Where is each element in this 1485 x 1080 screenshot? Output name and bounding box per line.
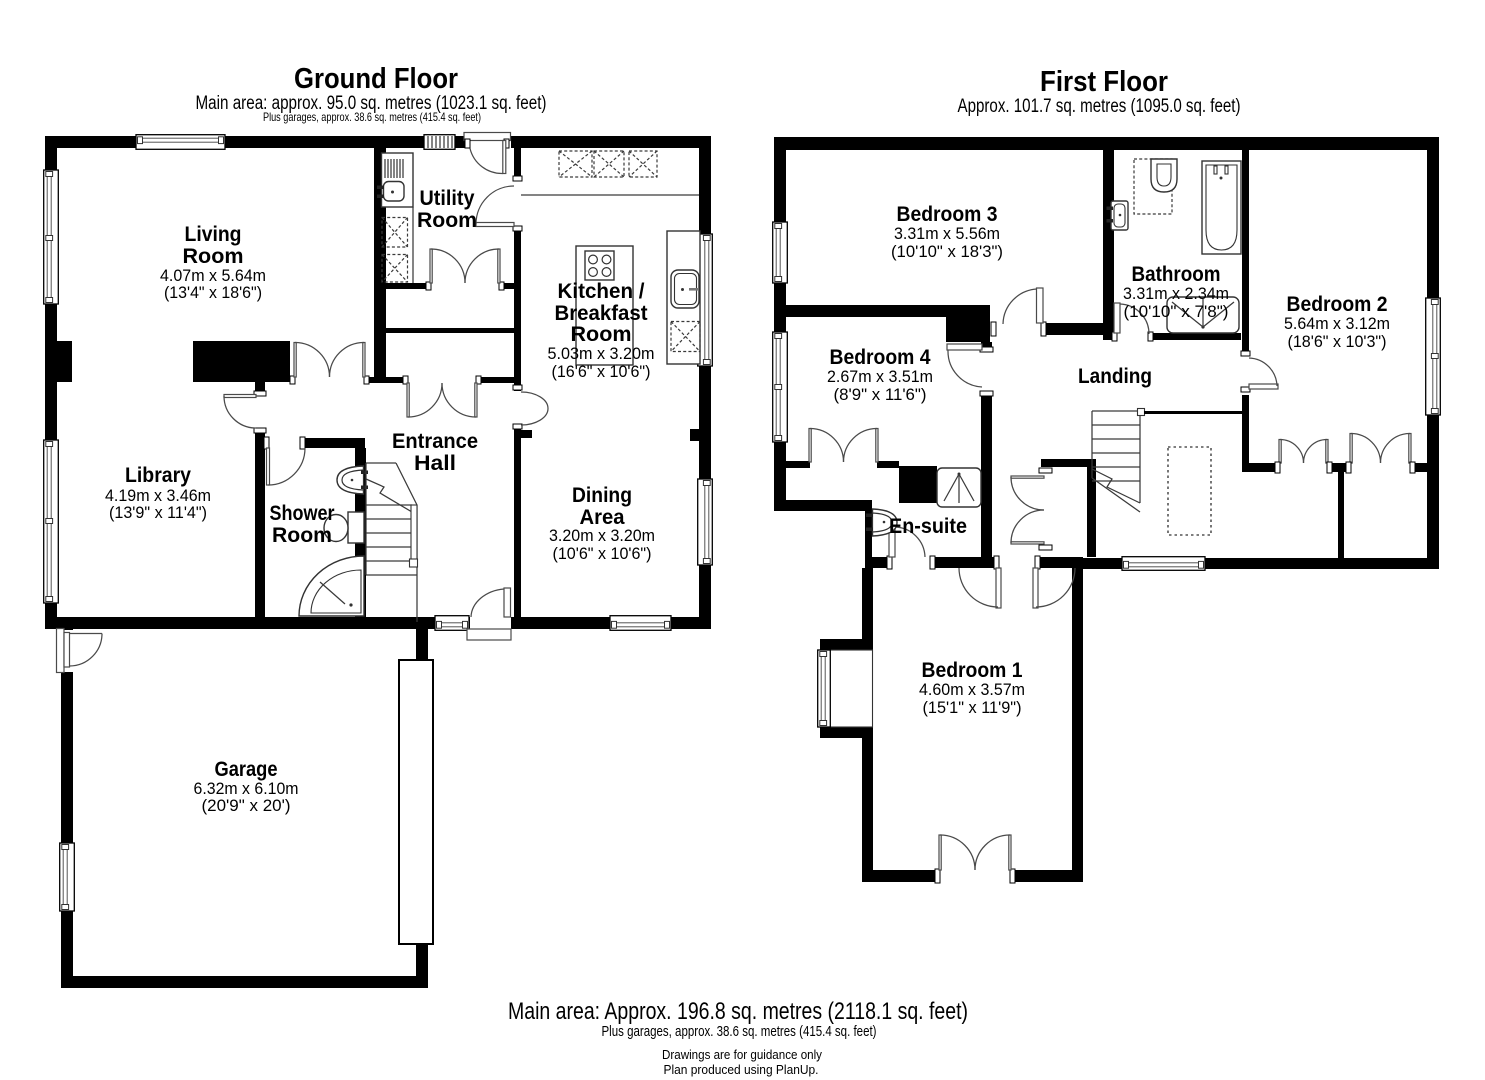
svg-text:(18'6" x 10'3"): (18'6" x 10'3") <box>1288 332 1387 351</box>
svg-text:Garage: Garage <box>215 758 278 781</box>
svg-text:Library: Library <box>125 464 191 487</box>
svg-text:(13'9" x 11'4"): (13'9" x 11'4") <box>109 503 207 522</box>
svg-text:Drawings are for guidance only: Drawings are for guidance only <box>662 1047 822 1062</box>
svg-text:Room: Room <box>272 524 332 547</box>
svg-text:Plus garages, approx. 38.6 sq.: Plus garages, approx. 38.6 sq. metres (4… <box>602 1023 877 1040</box>
svg-text:2.67m x 3.51m: 2.67m x 3.51m <box>827 367 933 386</box>
svg-text:Entrance: Entrance <box>392 430 478 453</box>
svg-text:Main area: Approx. 196.8 sq. m: Main area: Approx. 196.8 sq. metres (211… <box>508 998 968 1025</box>
svg-text:3.20m x 3.20m: 3.20m x 3.20m <box>549 526 655 545</box>
svg-text:3.31m x 5.56m: 3.31m x 5.56m <box>894 224 1000 243</box>
svg-text:Landing: Landing <box>1078 365 1152 388</box>
svg-text:Bedroom 3: Bedroom 3 <box>897 203 998 226</box>
svg-text:Utility: Utility <box>420 187 475 210</box>
svg-text:(15'1" x 11'9"): (15'1" x 11'9") <box>923 698 1022 717</box>
svg-text:5.03m x 3.20m: 5.03m x 3.20m <box>548 344 655 363</box>
svg-text:Bedroom 1: Bedroom 1 <box>922 659 1023 682</box>
svg-text:5.64m x 3.12m: 5.64m x 3.12m <box>1284 314 1390 333</box>
svg-text:Room: Room <box>571 323 632 346</box>
svg-text:(10'6" x 10'6"): (10'6" x 10'6") <box>553 544 652 563</box>
svg-text:En-suite: En-suite <box>889 515 967 538</box>
svg-text:(10'10" x 18'3"): (10'10" x 18'3") <box>891 242 1003 261</box>
svg-text:Breakfast: Breakfast <box>555 302 648 325</box>
svg-text:First Floor: First Floor <box>1040 66 1168 98</box>
svg-text:3.31m x 2.34m: 3.31m x 2.34m <box>1123 284 1229 303</box>
svg-text:Plan produced using PlanUp.: Plan produced using PlanUp. <box>664 1062 819 1077</box>
svg-text:(20'9" x 20'): (20'9" x 20') <box>202 796 291 815</box>
svg-text:Bedroom 2: Bedroom 2 <box>1287 293 1388 316</box>
svg-text:Living: Living <box>185 223 242 246</box>
svg-text:(16'6" x 10'6"): (16'6" x 10'6") <box>552 362 651 381</box>
svg-text:Shower: Shower <box>270 502 335 525</box>
svg-text:Plus garages, approx. 38.6 sq.: Plus garages, approx. 38.6 sq. metres (4… <box>263 110 481 124</box>
svg-text:Room: Room <box>183 245 244 268</box>
svg-text:Bedroom 4: Bedroom 4 <box>830 346 931 369</box>
svg-text:4.60m x 3.57m: 4.60m x 3.57m <box>919 680 1025 699</box>
svg-text:(13'4" x 18'6"): (13'4" x 18'6") <box>164 283 262 302</box>
svg-text:(10'10" x 7'8"): (10'10" x 7'8") <box>1124 302 1229 321</box>
svg-text:Ground Floor: Ground Floor <box>294 63 458 95</box>
svg-text:(8'9" x 11'6"): (8'9" x 11'6") <box>834 385 927 404</box>
svg-text:Approx. 101.7 sq. metres (1095: Approx. 101.7 sq. metres (1095.0 sq. fee… <box>958 96 1241 117</box>
svg-text:Hall: Hall <box>414 452 456 475</box>
svg-text:Bathroom: Bathroom <box>1132 263 1221 286</box>
svg-text:Room: Room <box>417 209 477 232</box>
svg-text:Dining: Dining <box>572 484 632 507</box>
svg-text:Kitchen /: Kitchen / <box>558 280 645 303</box>
